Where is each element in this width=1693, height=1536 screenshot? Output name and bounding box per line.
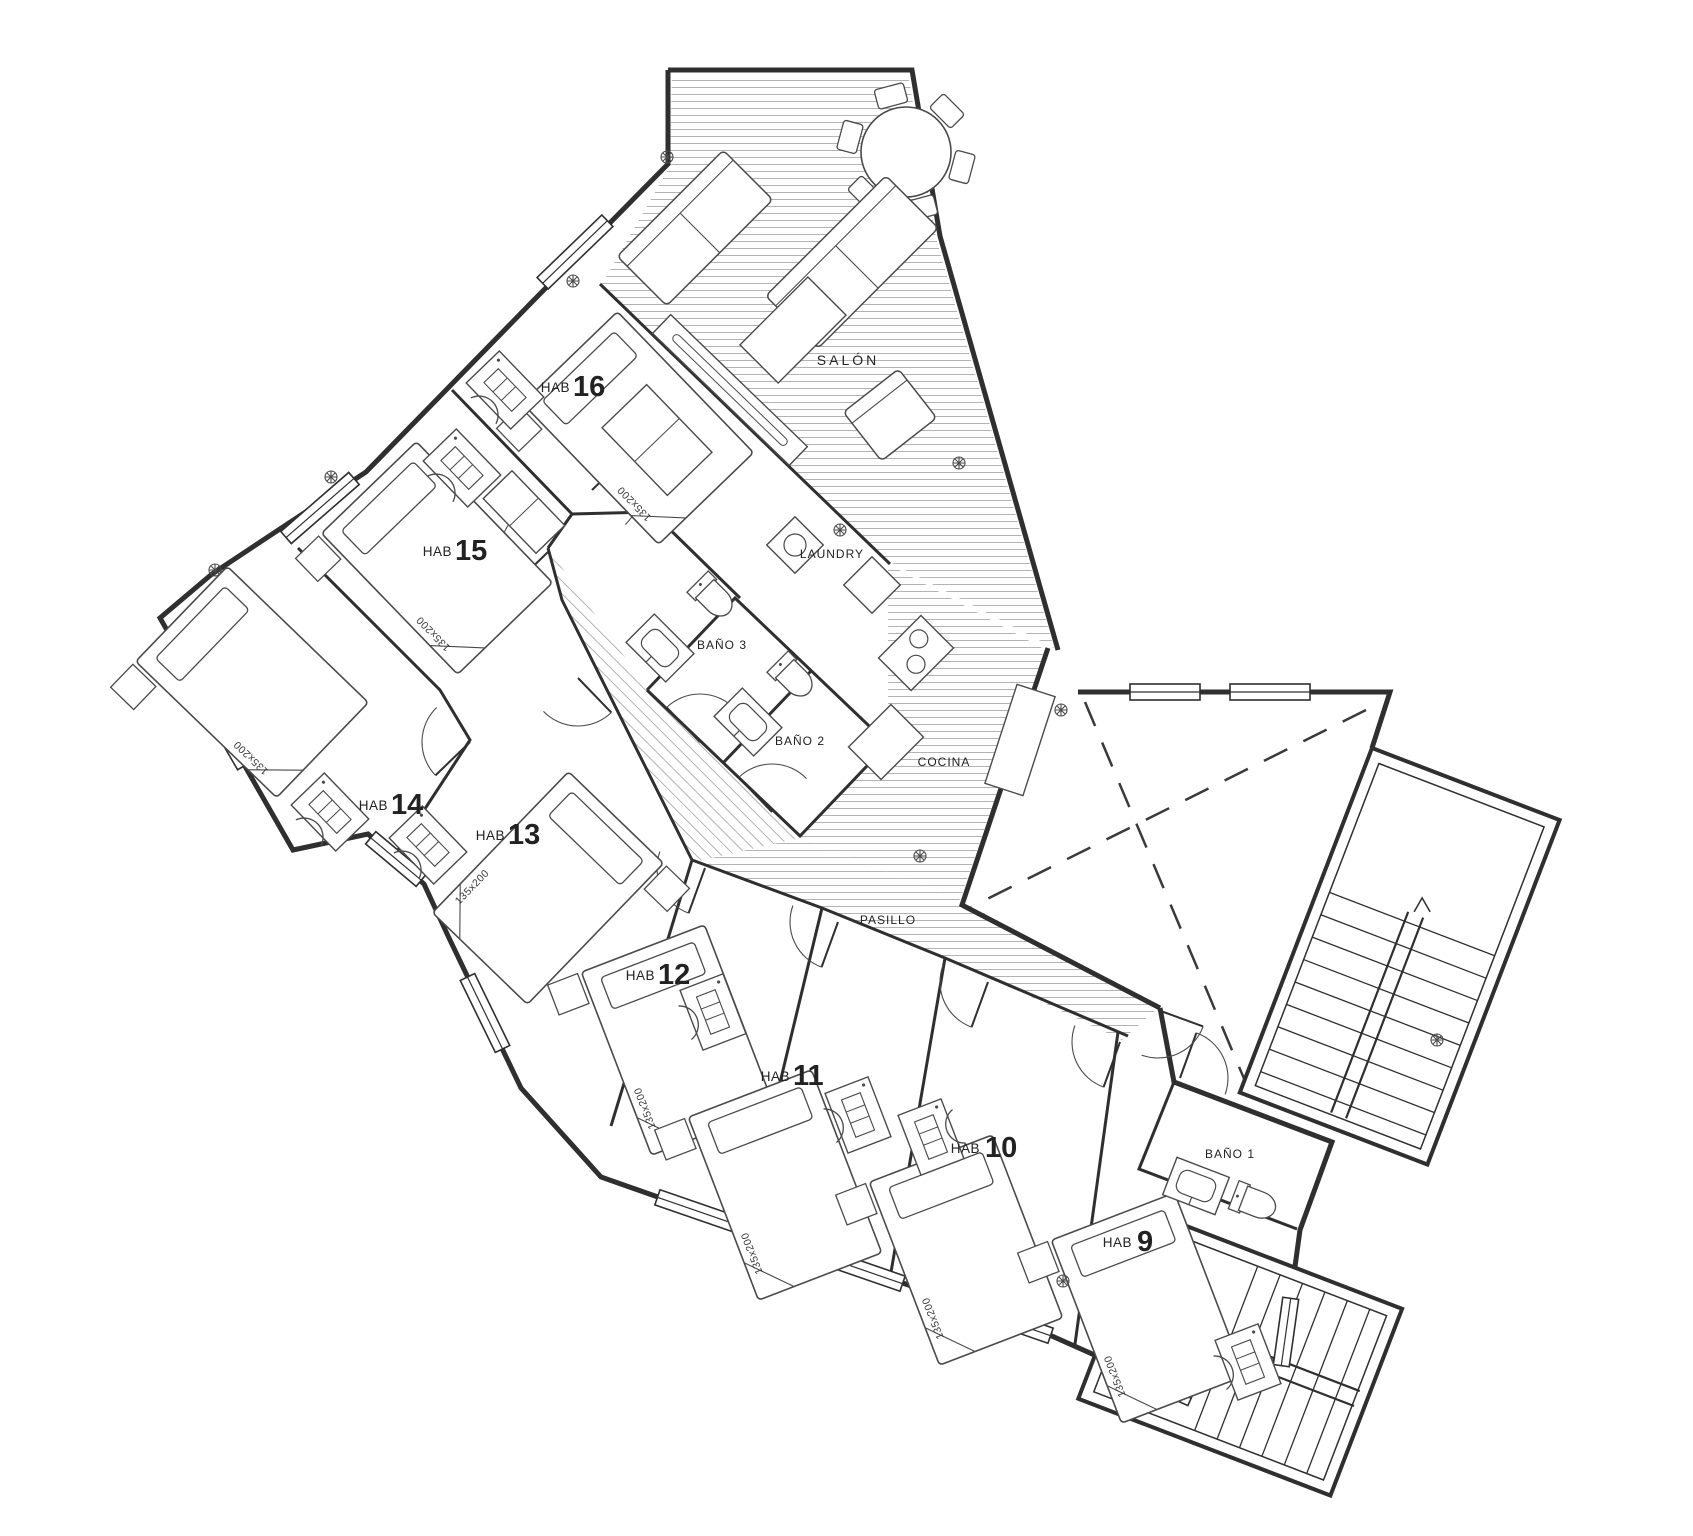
- sink: [626, 614, 694, 682]
- room-label-hab15-prefix: HAB: [423, 544, 452, 559]
- label-laundry: LAUNDRY: [800, 547, 864, 561]
- label-bano1: BAÑO 1: [1205, 1147, 1255, 1161]
- stair-upper-outer-wall: [1240, 748, 1560, 1165]
- toilet: [687, 571, 739, 623]
- door-leaf: [1180, 1033, 1196, 1078]
- window: [1130, 684, 1200, 700]
- room-label-hab14-prefix: HAB: [359, 798, 388, 813]
- nightstand: [548, 974, 589, 1015]
- door-swing-arc: [543, 678, 611, 746]
- dining-table-top: [861, 107, 951, 197]
- room-label-hab11-prefix: HAB: [761, 1069, 790, 1084]
- room-label-hab12-number: 12: [658, 959, 690, 991]
- desk: [286, 773, 369, 856]
- junction-marker-icon: [953, 457, 965, 469]
- window: [1230, 684, 1310, 700]
- door-swing-arc: [776, 906, 838, 968]
- washing-machine-body: [767, 517, 824, 574]
- junction-marker-icon: [1431, 1034, 1443, 1046]
- room-label-hab10-prefix: HAB: [951, 1141, 980, 1156]
- floor-plan-page: 135x200135x200135x200135x200135x200135x2…: [0, 0, 1693, 1536]
- door: [776, 906, 838, 968]
- sink-counter: [714, 688, 782, 756]
- room-label-hab9-number: 9: [1137, 1226, 1153, 1258]
- room-label-hab12-prefix: HAB: [626, 968, 655, 983]
- window: [537, 215, 613, 289]
- door-leaf: [972, 982, 988, 1027]
- window: [460, 974, 509, 1053]
- room-label-hab16-number: 16: [573, 371, 605, 403]
- junction-marker-icon: [661, 151, 673, 163]
- dining-chair-seat: [948, 150, 975, 184]
- junction-marker-icon: [1055, 704, 1067, 716]
- junction-marker-icon: [834, 524, 846, 536]
- window-glass-line: [467, 977, 502, 1049]
- desk-top: [291, 773, 369, 851]
- stair-upper: [1240, 748, 1560, 1165]
- label-pasillo: PASILLO: [860, 913, 916, 927]
- toilet: [767, 651, 819, 703]
- door-leaf: [435, 742, 470, 775]
- dining-chair: [948, 150, 975, 184]
- washing-machine: [767, 517, 824, 574]
- room-label-hab14-number: 14: [391, 789, 423, 821]
- label-salon: SALÓN: [817, 352, 879, 368]
- door: [543, 678, 611, 746]
- label-bano3: BAÑO 3: [697, 638, 747, 652]
- floor-plan-drawing: 135x200135x200135x200135x200135x200135x2…: [0, 0, 1693, 1536]
- label-cocina: COCINA: [918, 755, 971, 769]
- junction-marker-icon: [914, 850, 926, 862]
- junction-marker-icon: [325, 471, 337, 483]
- door-leaf: [689, 868, 705, 913]
- label-bano2: BAÑO 2: [775, 734, 825, 748]
- junction-marker-icon: [567, 275, 579, 287]
- window-glass-line: [543, 221, 608, 284]
- room-label-hab13-prefix: HAB: [476, 828, 505, 843]
- door: [402, 707, 470, 775]
- sink: [714, 688, 782, 756]
- door-leaf: [822, 922, 838, 967]
- junction-marker-icon: [209, 564, 221, 576]
- room-label-hab10-number: 10: [985, 1132, 1017, 1164]
- sink-counter: [626, 614, 694, 682]
- room-label-hab11-number: 11: [793, 1060, 824, 1092]
- room-label-hab15-number: 15: [455, 535, 487, 567]
- door-swing-arc: [402, 707, 470, 775]
- room-label-hab13-number: 13: [508, 819, 540, 851]
- room-label-hab16-prefix: HAB: [541, 380, 570, 395]
- junction-marker-icon: [1057, 1275, 1069, 1287]
- toilet: [1228, 1181, 1280, 1225]
- room-label-hab9-prefix: HAB: [1103, 1235, 1132, 1250]
